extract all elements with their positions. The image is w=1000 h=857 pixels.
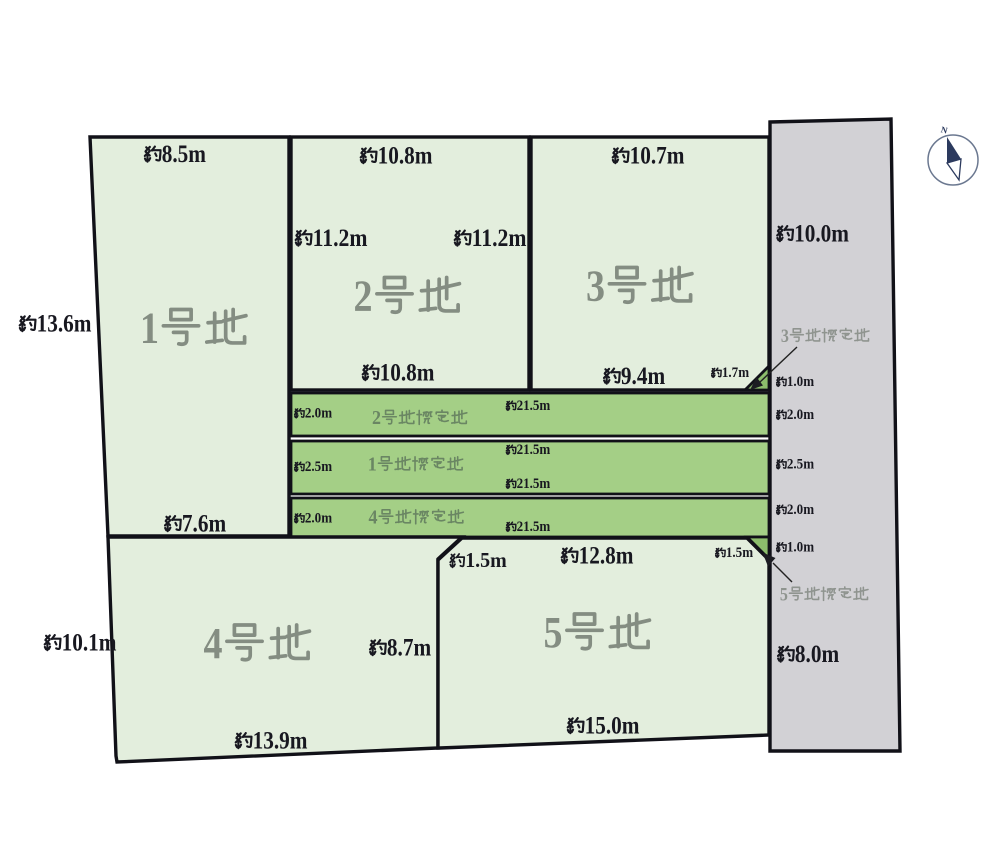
svg-text:5: 5 bbox=[544, 608, 563, 657]
svg-text:3: 3 bbox=[781, 326, 789, 347]
svg-text:10.8m: 10.8m bbox=[378, 143, 433, 170]
svg-text:1.0m: 1.0m bbox=[787, 374, 815, 390]
svg-text:8.0m: 8.0m bbox=[795, 641, 839, 668]
svg-text:13.6m: 13.6m bbox=[37, 311, 92, 338]
svg-text:2.5m: 2.5m bbox=[305, 459, 333, 475]
svg-text:2.0m: 2.0m bbox=[305, 406, 333, 422]
svg-text:10.8m: 10.8m bbox=[380, 360, 435, 387]
svg-text:5: 5 bbox=[780, 584, 788, 605]
svg-text:1: 1 bbox=[140, 304, 159, 353]
svg-text:2.5m: 2.5m bbox=[787, 457, 815, 473]
svg-text:8.5m: 8.5m bbox=[162, 141, 206, 168]
svg-text:10.0m: 10.0m bbox=[794, 221, 849, 248]
svg-text:7.6m: 7.6m bbox=[182, 511, 226, 538]
svg-text:N: N bbox=[940, 124, 949, 135]
svg-text:9.4m: 9.4m bbox=[621, 363, 665, 390]
svg-text:11.2m: 11.2m bbox=[313, 225, 368, 252]
svg-text:4: 4 bbox=[369, 507, 378, 529]
svg-text:10.7m: 10.7m bbox=[630, 143, 685, 170]
svg-text:1.5m: 1.5m bbox=[726, 545, 754, 561]
svg-text:21.5m: 21.5m bbox=[517, 519, 551, 535]
svg-text:11.2m: 11.2m bbox=[472, 225, 527, 252]
svg-text:15.0m: 15.0m bbox=[585, 713, 640, 740]
svg-text:1.5m: 1.5m bbox=[465, 548, 507, 572]
svg-text:8.7m: 8.7m bbox=[387, 635, 431, 662]
svg-text:2.0m: 2.0m bbox=[787, 407, 815, 423]
svg-text:2: 2 bbox=[372, 407, 381, 429]
svg-text:1.0m: 1.0m bbox=[787, 540, 815, 556]
svg-text:13.9m: 13.9m bbox=[253, 728, 308, 755]
svg-text:21.5m: 21.5m bbox=[517, 476, 551, 492]
svg-text:21.5m: 21.5m bbox=[517, 442, 551, 458]
svg-text:1.7m: 1.7m bbox=[722, 365, 750, 381]
svg-text:2.0m: 2.0m bbox=[787, 502, 815, 518]
svg-text:2.0m: 2.0m bbox=[305, 511, 333, 527]
svg-text:4: 4 bbox=[204, 619, 223, 668]
svg-text:1: 1 bbox=[368, 454, 377, 476]
svg-text:12.8m: 12.8m bbox=[579, 543, 634, 570]
svg-text:2: 2 bbox=[354, 272, 373, 321]
svg-text:10.1m: 10.1m bbox=[62, 630, 117, 657]
svg-text:21.5m: 21.5m bbox=[517, 398, 551, 414]
svg-text:3: 3 bbox=[586, 262, 605, 311]
